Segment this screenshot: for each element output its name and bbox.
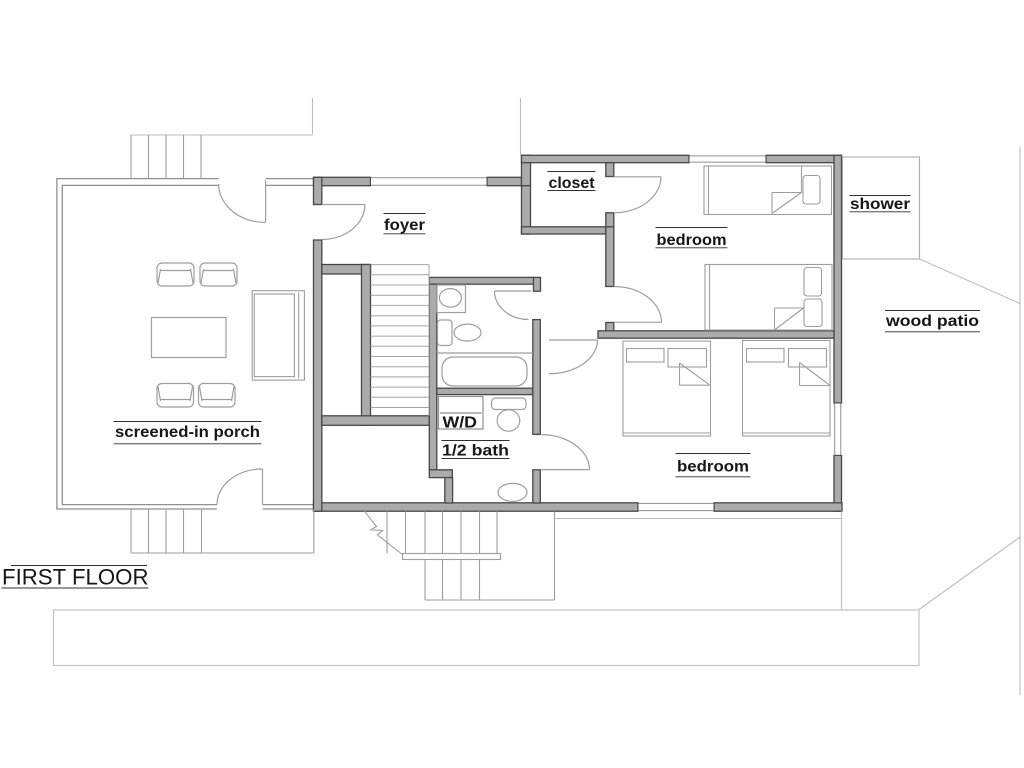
svg-text:FIRST FLOOR: FIRST FLOOR: [2, 565, 149, 590]
svg-text:wood patio: wood patio: [885, 313, 979, 330]
svg-text:closet: closet: [549, 175, 596, 192]
svg-text:1/2 bath: 1/2 bath: [442, 443, 509, 460]
svg-text:W/D: W/D: [443, 415, 478, 432]
svg-text:foyer: foyer: [384, 217, 425, 234]
svg-text:screened-in porch: screened-in porch: [115, 424, 260, 441]
svg-text:bedroom: bedroom: [677, 459, 749, 476]
svg-text:bedroom: bedroom: [657, 232, 727, 249]
svg-text:shower: shower: [850, 196, 910, 213]
